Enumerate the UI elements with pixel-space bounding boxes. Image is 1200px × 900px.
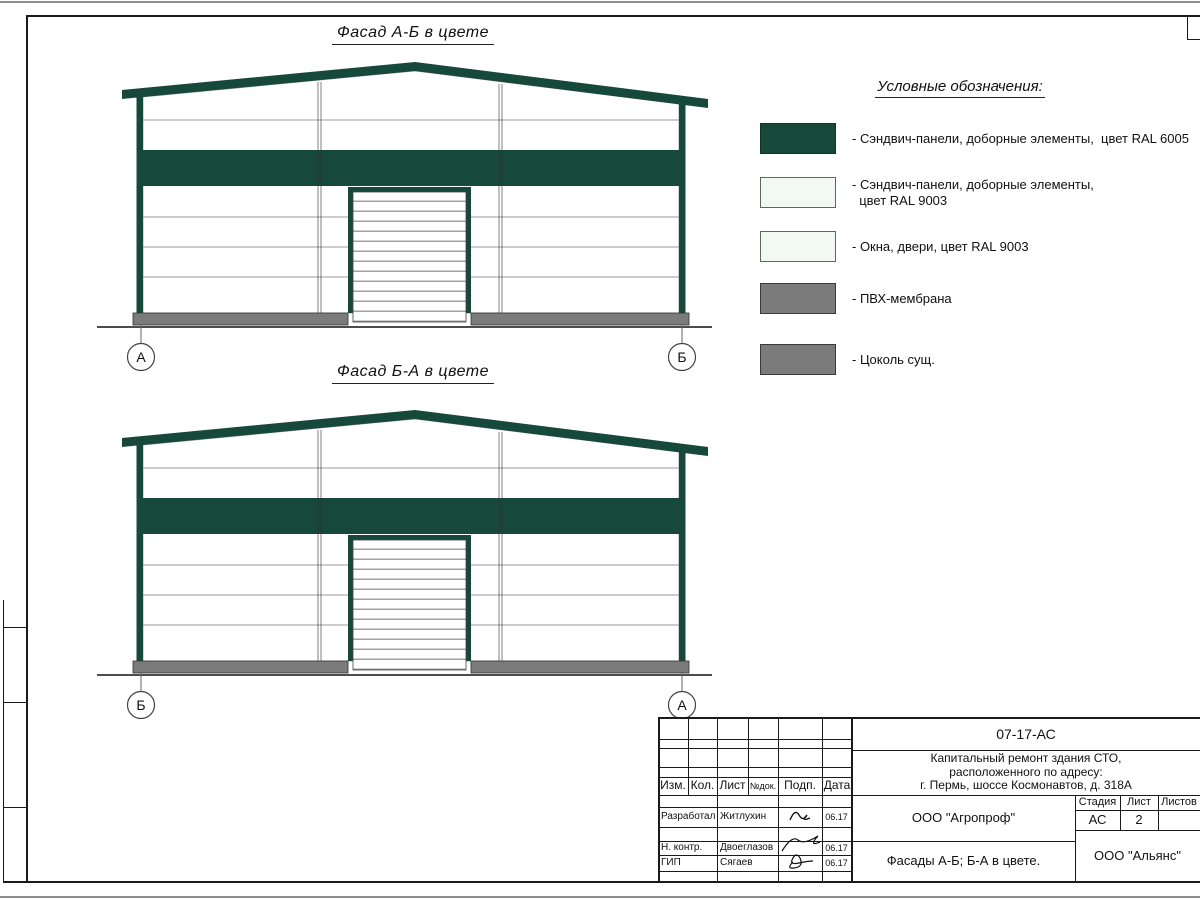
axis-label-left: А [136,349,146,365]
legend-label: - Окна, двери, цвет RAL 9003 [852,231,1197,263]
legend-label: - Цоколь сущ. [852,344,1197,376]
paper-edge-top [0,1,1200,3]
gate-shutter [353,540,466,670]
col-ndok: №док. [748,777,778,795]
green-band [143,498,679,534]
tb-line [658,748,852,749]
sig-date: 06.17 [822,855,851,871]
col-data: Дата [822,777,852,795]
stage-header: Стадия [1075,795,1120,810]
tb-line [658,767,852,768]
legend-swatch-plinth [760,344,836,375]
side-stamp-divider [3,807,26,808]
sig-role: ГИП [661,855,716,871]
stage-value: АС [1075,810,1120,830]
column-left [137,95,144,313]
project-line: Капитальный ремонт здания СТО, [931,752,1122,766]
corner-box [1187,15,1200,40]
doc-number: 07-17-АС [852,718,1200,750]
col-podp: Подп. [778,777,822,795]
column-right [679,102,686,313]
legend-label: - Сэндвич-панели, доборные элементы, цве… [852,123,1197,155]
axis-label-left: Б [136,697,145,713]
sheet-header: Лист [1120,795,1158,810]
col-list: Лист [717,777,748,795]
tb-line [658,739,852,740]
plinth-left [133,313,348,325]
side-stamp-divider [3,627,26,628]
gate-shutter [353,192,466,322]
drawing-title: Фасады А-Б; Б-А в цвете. [852,841,1075,882]
signature-icon [783,851,821,872]
frame-left [26,15,28,883]
client-org: ООО "Альянс" [1075,830,1200,882]
paper-edge-bottom [0,896,1200,898]
sig-name: Житлухин [720,807,777,827]
sig-role: Разработал [661,807,716,827]
column-left [137,443,144,661]
legend-label: - Сэндвич-панели, доборные элементы, цве… [852,177,1197,209]
signature-icon [786,806,820,826]
facade-ab-title-text: Фасад А-Б в цвете [332,24,494,45]
green-band [143,150,679,186]
sheets-header: Листов [1158,795,1200,810]
axis-label-right: Б [677,349,686,365]
facade-ab-drawing: А Б [93,55,718,375]
tb-line [778,718,779,882]
side-stamp-divider [3,702,26,703]
legend-swatch-ral9003-panels [760,177,836,208]
col-kol: Кол. [688,777,717,795]
legend-heading: Условные обозначения: [845,78,1075,98]
titleblock-left [658,717,660,882]
legend-heading-text: Условные обозначения: [875,78,1045,98]
axis-label-right: А [677,697,687,713]
frame-top [26,15,1200,17]
sheet-value: 2 [1120,810,1158,830]
plinth-right [471,661,689,673]
project-line: г. Пермь, шоссе Космонавтов, д. 318А [920,779,1132,793]
facade-ba-drawing: Б А [93,403,718,723]
sheets-value [1158,810,1200,830]
sig-name: Сягаев [720,855,777,871]
sig-date: 06.17 [822,841,851,855]
project-line: расположенного по адресу: [949,766,1103,780]
tb-line [658,871,852,872]
legend-swatch-pvc-membrane [760,283,836,314]
legend-swatch-ral9003-windows [760,231,836,262]
designer-org: ООО "Агропроф" [852,795,1075,841]
facade-ab-title: Фасад А-Б в цвете [263,24,563,45]
sig-date: 06.17 [822,807,851,827]
plinth-right [471,313,689,325]
drawing-sheet: Фасад А-Б в цвете Фасад Б-А в цвете [0,0,1200,900]
legend-swatch-ral6005 [760,123,836,154]
side-stamp-line [3,600,4,882]
col-izm: Изм. [658,777,688,795]
sig-role: Н. контр. [661,841,716,855]
legend-label: - ПВХ-мембрана [852,283,1197,315]
sig-name: Двоеглазов [720,841,777,855]
project-description: Капитальный ремонт здания СТО, расположе… [852,750,1200,795]
plinth-left [133,661,348,673]
tb-line [717,718,718,882]
column-right [679,450,686,661]
tb-line [658,827,852,828]
